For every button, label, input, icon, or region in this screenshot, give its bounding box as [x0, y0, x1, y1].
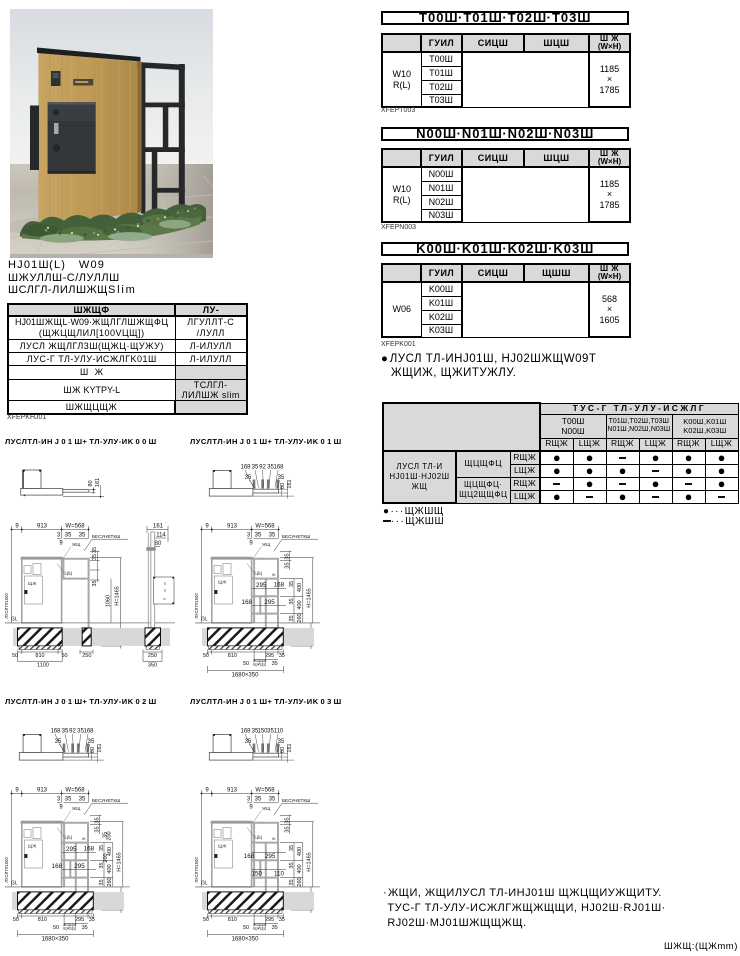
svg-text:35: 35 [279, 917, 285, 923]
svg-text:295: 295 [75, 917, 84, 923]
svg-text:W=568: W=568 [65, 524, 85, 530]
svg-text:168: 168 [244, 853, 255, 860]
svg-text:35: 35 [255, 797, 262, 803]
svg-text:161: 161 [153, 524, 164, 530]
svg-text:50: 50 [12, 653, 18, 659]
svg-text:50: 50 [61, 653, 67, 659]
svg-text:1100: 1100 [37, 663, 49, 669]
svg-text:150: 150 [252, 871, 263, 878]
svg-text:350: 350 [148, 663, 157, 669]
svg-text:50: 50 [203, 917, 209, 923]
svg-text:80: 80 [90, 747, 96, 753]
svg-text:35: 35 [289, 845, 295, 851]
svg-text:ЖЩ: ЖЩ [72, 542, 81, 547]
svg-text:200: 200 [103, 853, 109, 862]
svg-text:1680×350: 1680×350 [232, 673, 260, 679]
svg-text:35: 35 [99, 879, 105, 885]
svg-text:913: 913 [227, 788, 238, 794]
svg-text:1060: 1060 [105, 595, 111, 607]
svg-text:ЩЖ: ЩЖ [28, 844, 37, 849]
svg-text:168: 168 [242, 599, 253, 606]
svg-text:БЕСУНЕТКШ: БЕСУНЕТКШ [92, 534, 120, 539]
svg-text:ЛУСЛТЛ1500: ЛУСЛТЛ1500 [194, 593, 199, 619]
svg-text:35: 35 [255, 533, 262, 539]
svg-text:114: 114 [156, 533, 166, 539]
svg-text:400: 400 [297, 600, 303, 609]
svg-text:ЩЖЦЩ: ЩЖЦЩ [63, 927, 76, 931]
svg-text:35: 35 [79, 797, 86, 803]
svg-text:35: 35 [289, 862, 295, 868]
svg-text:810: 810 [228, 917, 237, 923]
svg-text:295: 295 [66, 846, 77, 853]
svg-text:3: 3 [247, 797, 251, 803]
svg-text:H=1465: H=1465 [307, 852, 313, 871]
svg-text:35: 35 [252, 465, 259, 471]
svg-text:3: 3 [57, 797, 61, 803]
svg-text:400: 400 [297, 583, 303, 592]
svg-text:W=568: W=568 [255, 524, 275, 530]
svg-text:913: 913 [227, 524, 238, 530]
svg-text:200: 200 [107, 831, 113, 840]
svg-text:295: 295 [256, 582, 267, 589]
svg-text:913: 913 [37, 788, 48, 794]
svg-text:35: 35 [279, 653, 285, 659]
svg-text:168: 168 [52, 863, 63, 870]
svg-text:110: 110 [274, 729, 284, 735]
svg-text:35: 35 [95, 826, 101, 832]
svg-text:Ж: Ж [82, 836, 86, 841]
svg-text:35: 35 [88, 739, 95, 745]
svg-text:35: 35 [272, 661, 278, 667]
svg-text:92: 92 [69, 729, 76, 735]
svg-text:161: 161 [287, 743, 293, 752]
svg-text:GL: GL [11, 617, 18, 623]
svg-text:3: 3 [247, 533, 251, 539]
svg-text:35: 35 [92, 547, 98, 553]
svg-text:35: 35 [95, 817, 101, 823]
svg-text:H=1465: H=1465 [307, 588, 313, 607]
svg-text:ЦЩ: ЦЩ [65, 571, 73, 576]
svg-text:295: 295 [74, 863, 85, 870]
svg-text:80: 80 [280, 747, 286, 753]
svg-text:35: 35 [269, 533, 276, 539]
svg-text:35: 35 [245, 475, 252, 481]
svg-text:ЩЖЦЩ: ЩЖЦЩ [253, 927, 266, 931]
svg-text:35: 35 [285, 562, 291, 568]
svg-text:35: 35 [278, 739, 285, 745]
svg-text:400: 400 [297, 864, 303, 873]
svg-text:GL: GL [11, 881, 18, 887]
svg-text:ЛУСЛТЛ1500: ЛУСЛТЛ1500 [4, 857, 9, 883]
svg-text:ЛУСЛТЛ1500: ЛУСЛТЛ1500 [4, 593, 9, 619]
svg-text:35: 35 [89, 917, 95, 923]
svg-text:3: 3 [57, 533, 61, 539]
svg-text:W=568: W=568 [65, 788, 85, 794]
svg-text:1680×350: 1680×350 [232, 937, 260, 943]
svg-text:50: 50 [13, 917, 19, 923]
svg-text:50: 50 [203, 653, 209, 659]
svg-text:161: 161 [97, 743, 103, 752]
svg-text:35: 35 [289, 615, 295, 621]
svg-text:9: 9 [249, 805, 253, 811]
svg-text:168: 168 [84, 846, 95, 853]
svg-text:ЦЩ: ЦЩ [255, 835, 263, 840]
svg-text:35: 35 [285, 817, 291, 823]
svg-text:GL: GL [201, 881, 208, 887]
svg-text:35: 35 [62, 729, 69, 735]
svg-text:80: 80 [88, 480, 94, 486]
svg-text:9: 9 [205, 524, 209, 530]
svg-text:250: 250 [148, 653, 157, 659]
svg-text:ЦЩ: ЦЩ [65, 835, 73, 840]
svg-text:260: 260 [297, 877, 303, 886]
svg-text:35: 35 [65, 533, 72, 539]
svg-text:161: 161 [95, 478, 101, 487]
svg-text:35: 35 [289, 581, 295, 587]
svg-text:35: 35 [289, 598, 295, 604]
svg-text:ЦЩ: ЦЩ [255, 571, 263, 576]
svg-text:295: 295 [265, 917, 274, 923]
svg-text:9: 9 [15, 788, 19, 794]
svg-text:35: 35 [269, 797, 276, 803]
svg-text:35: 35 [245, 739, 252, 745]
svg-text:ЖЩ: ЖЩ [72, 806, 81, 811]
svg-text:ЩЖ: ЩЖ [218, 844, 227, 849]
svg-text:H=1465: H=1465 [115, 586, 121, 605]
svg-text:295: 295 [265, 853, 276, 860]
svg-text:168: 168 [274, 582, 285, 589]
svg-text:400: 400 [107, 864, 113, 873]
svg-text:9: 9 [59, 805, 63, 811]
svg-text:260: 260 [297, 613, 303, 622]
svg-text:W=568: W=568 [255, 788, 275, 794]
svg-text:168: 168 [273, 465, 284, 471]
svg-text:Ж: Ж [272, 836, 276, 841]
svg-text:35: 35 [285, 553, 291, 559]
svg-text:913: 913 [37, 524, 48, 530]
svg-text:ЛУСЛТЛ1500: ЛУСЛТЛ1500 [194, 857, 199, 883]
svg-text:35: 35 [285, 826, 291, 832]
svg-text:9: 9 [15, 524, 19, 530]
svg-text:295: 295 [264, 599, 275, 606]
svg-text:БЕСУНЕТКШ: БЕСУНЕТКШ [282, 798, 310, 803]
svg-text:80: 80 [155, 541, 162, 547]
svg-text:35: 35 [289, 879, 295, 885]
svg-text:ЩЖ: ЩЖ [28, 581, 37, 586]
svg-text:110: 110 [274, 871, 285, 878]
svg-text:35: 35 [92, 554, 98, 560]
svg-text:1680×350: 1680×350 [42, 937, 70, 943]
svg-text:92: 92 [259, 465, 266, 471]
svg-text:168: 168 [240, 465, 251, 471]
svg-text:80: 80 [280, 483, 286, 489]
svg-text:9: 9 [205, 788, 209, 794]
svg-text:168: 168 [83, 729, 94, 735]
svg-text:260: 260 [107, 877, 113, 886]
svg-text:H=1465: H=1465 [117, 852, 123, 871]
svg-text:35: 35 [92, 580, 98, 586]
svg-text:810: 810 [35, 653, 44, 659]
svg-text:БЕСУНЕТКШ: БЕСУНЕТКШ [282, 534, 310, 539]
svg-text:БЕСУНЕТКШ: БЕСУНЕТКШ [92, 798, 120, 803]
svg-text:35: 35 [65, 797, 72, 803]
svg-text:GL: GL [201, 617, 208, 623]
svg-text:168: 168 [50, 729, 61, 735]
svg-text:810: 810 [38, 917, 47, 923]
svg-text:400: 400 [297, 847, 303, 856]
svg-text:35: 35 [272, 925, 278, 931]
svg-text:ЖЩ: ЖЩ [262, 806, 271, 811]
svg-text:250: 250 [82, 653, 91, 659]
svg-text:35: 35 [79, 533, 86, 539]
svg-text:810: 810 [228, 653, 237, 659]
svg-text:9: 9 [59, 541, 63, 547]
svg-text:35: 35 [99, 845, 105, 851]
svg-text:Ж: Ж [272, 572, 276, 577]
svg-text:ЩЖ: ЩЖ [218, 580, 227, 585]
svg-text:35: 35 [278, 475, 285, 481]
svg-text:295: 295 [265, 653, 274, 659]
svg-text:161: 161 [287, 479, 293, 488]
svg-text:168: 168 [240, 729, 251, 735]
svg-text:35: 35 [55, 739, 62, 745]
svg-text:9: 9 [249, 541, 253, 547]
svg-text:ЖЩ: ЖЩ [262, 542, 271, 547]
svg-text:ЩЖЦЩ: ЩЖЦЩ [253, 663, 266, 667]
svg-text:35: 35 [82, 925, 88, 931]
